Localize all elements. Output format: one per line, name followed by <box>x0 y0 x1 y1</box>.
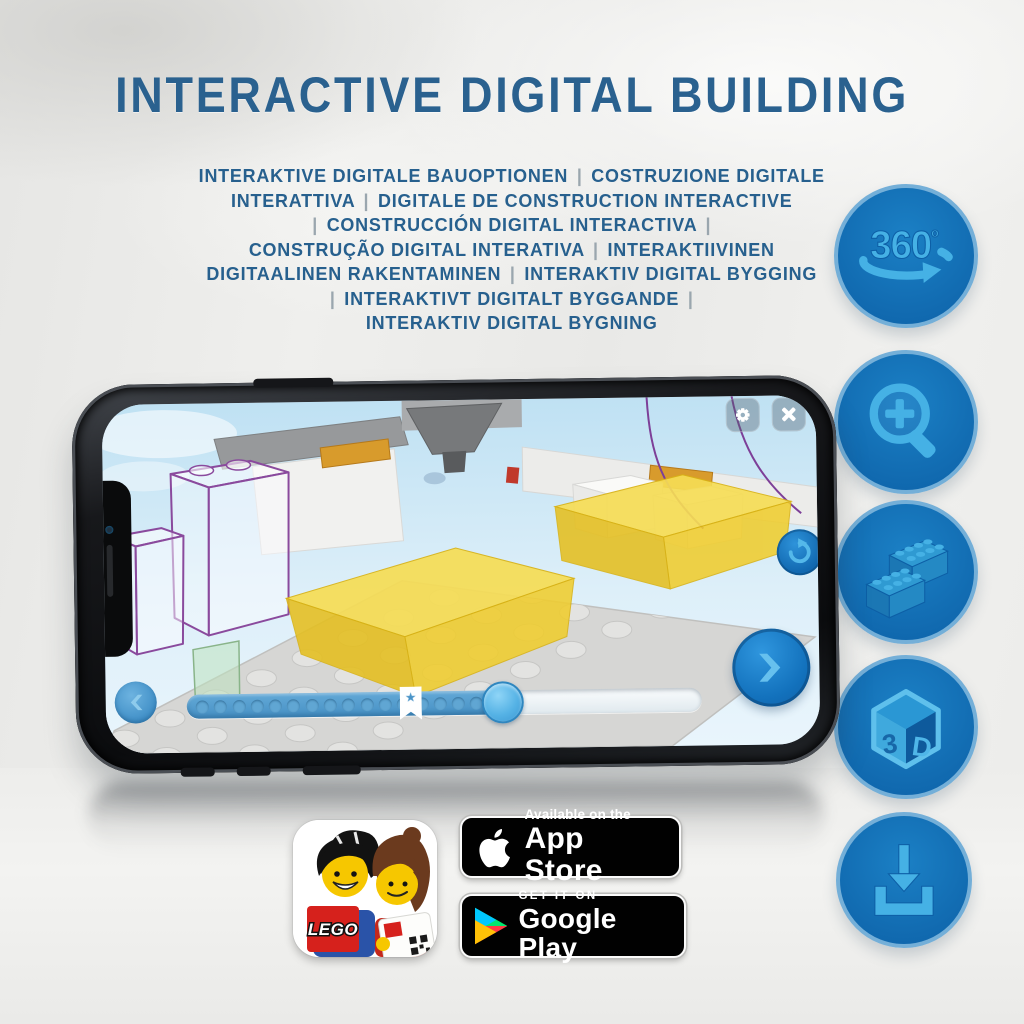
subtitle-line: DIGITAALINEN RAKENTAMINEN | INTERAKTIV D… <box>199 262 825 287</box>
reset-rotation-button[interactable] <box>776 529 820 576</box>
svg-text:360º: 360º <box>870 224 939 267</box>
app-store-tagline: Available on the <box>525 808 669 822</box>
google-play-icon <box>475 907 507 945</box>
phone-volume-down-button <box>237 767 271 776</box>
360-rotation-glyph: 360º <box>854 204 958 308</box>
bricks-icon <box>834 500 978 644</box>
lego-app-artwork: LEGO <box>293 820 437 957</box>
close-button[interactable] <box>772 397 806 431</box>
subtitle-line: | INTERAKTIVT DIGITALT BYGGANDE | <box>199 287 825 312</box>
subtitle-line: INTERAKTIVE DIGITALE BAUOPTIONEN | COSTR… <box>199 164 825 189</box>
subtitle-line: | CONSTRUCCIÓN DIGITAL INTERACTIVA | <box>199 213 825 238</box>
zoom-in-icon <box>834 350 978 494</box>
subtitle-line: INTERATTIVA | DIGITALE DE CONSTRUCTION I… <box>199 189 825 214</box>
refresh-icon <box>784 536 816 568</box>
download-icon <box>836 812 972 948</box>
settings-button[interactable] <box>726 398 760 432</box>
google-play-name: Google Play <box>518 904 676 963</box>
phone-mockup: ★ <box>71 375 840 775</box>
progress-fill <box>187 690 517 719</box>
star-icon: ★ <box>405 691 417 704</box>
page-title: INTERACTIVE DIGITAL BUILDING <box>0 66 1024 124</box>
3d-view-icon: 3 D <box>834 655 978 799</box>
phone-volume-up-button <box>181 767 215 776</box>
bricks-glyph <box>854 520 958 624</box>
phone-side-button <box>303 765 361 775</box>
gear-icon <box>731 403 755 427</box>
close-icon <box>777 402 801 426</box>
subtitle-lines: INTERAKTIVE DIGITALE BAUOPTIONEN | COSTR… <box>199 164 825 336</box>
360-rotation-icon: 360º <box>834 184 978 328</box>
app-store-name: App Store <box>525 823 669 886</box>
google-play-tagline: GET IT ON <box>518 890 676 902</box>
google-play-badge[interactable]: GET IT ON Google Play <box>460 894 686 958</box>
subtitle-line: INTERAKTIV DIGITAL BYGNING <box>199 311 825 336</box>
svg-text:D: D <box>910 731 934 763</box>
download-glyph <box>852 828 956 932</box>
3d-view-glyph: 3 D <box>854 675 958 779</box>
svg-text:LEGO: LEGO <box>308 920 358 939</box>
lego-app-icon[interactable]: LEGO <box>293 820 437 957</box>
apple-icon <box>476 825 513 870</box>
chevron-left-icon <box>125 691 147 713</box>
phone-screen: ★ <box>102 395 821 754</box>
progress-dots <box>196 696 507 713</box>
app-store-badge[interactable]: Available on the App Store <box>460 816 681 878</box>
subtitle-line: CONSTRUÇÃO DIGITAL INTERATIVA | INTERAKT… <box>199 238 825 263</box>
phone-reflection <box>88 782 824 852</box>
chevron-right-icon <box>751 647 792 688</box>
zoom-in-glyph <box>854 370 958 474</box>
speaker-slit-icon <box>107 545 114 597</box>
camera-icon <box>105 526 113 534</box>
phone-notch <box>102 481 134 658</box>
lego-digital-building-poster: INTERACTIVE DIGITAL BUILDING INTERAKTIVE… <box>0 0 1024 1024</box>
phone-power-button <box>253 378 333 388</box>
